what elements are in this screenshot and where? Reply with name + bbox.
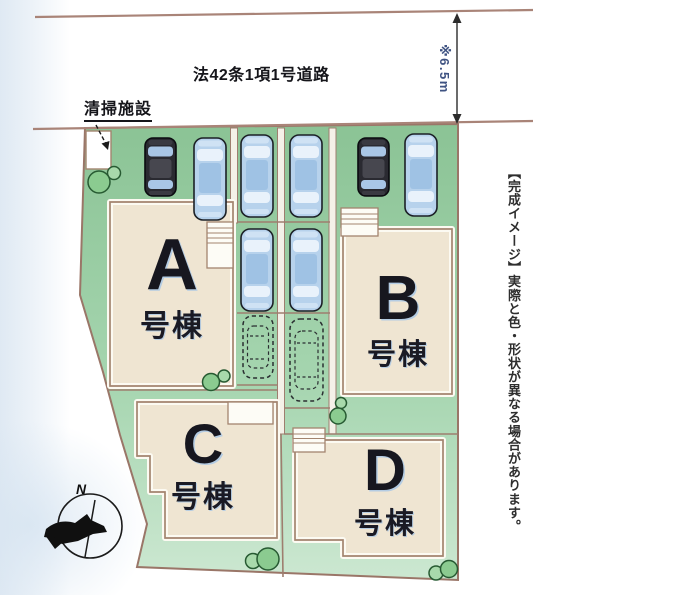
building-c-suffix: 号棟	[171, 472, 235, 516]
dimension-arrow	[453, 13, 462, 124]
compass-icon	[44, 494, 122, 558]
building-c-letter: C	[183, 417, 223, 470]
building-a-label: A 号棟	[112, 231, 232, 345]
building-c-label: C 号棟	[140, 417, 266, 516]
building-d-letter: D	[364, 443, 406, 498]
cleaning-facility-label: 清掃施設	[84, 101, 152, 122]
road-label: 法42条1項1号道路	[193, 61, 330, 85]
building-d-suffix: 号棟	[354, 500, 416, 542]
disclaimer-text: 【完成イメージ】実際と色・形状が異なる場合があります。	[504, 166, 523, 556]
car-icon	[241, 229, 273, 311]
building-b-label: B 号棟	[345, 270, 451, 373]
cleaning-facility-box	[86, 131, 111, 169]
car-icon	[194, 138, 226, 220]
site-plan-canvas: 法42条1項1号道路 ※6.5m 清掃施設 A 号棟 B 号棟 C 号棟 D 号…	[0, 0, 696, 595]
car-icon	[358, 138, 389, 196]
car-icon	[145, 138, 176, 196]
building-a-letter: A	[146, 231, 198, 299]
building-a-suffix: 号棟	[140, 301, 204, 345]
building-b-letter: B	[376, 270, 421, 329]
car-icon	[241, 135, 273, 217]
car-icon	[290, 229, 322, 311]
car-icon	[290, 135, 322, 217]
compass-north-label: N	[76, 481, 86, 497]
car-icon	[405, 134, 437, 216]
road-width-label: ※6.5m	[436, 44, 452, 94]
building-d-label: D 号棟	[322, 443, 448, 542]
building-b-suffix: 号棟	[367, 331, 429, 373]
